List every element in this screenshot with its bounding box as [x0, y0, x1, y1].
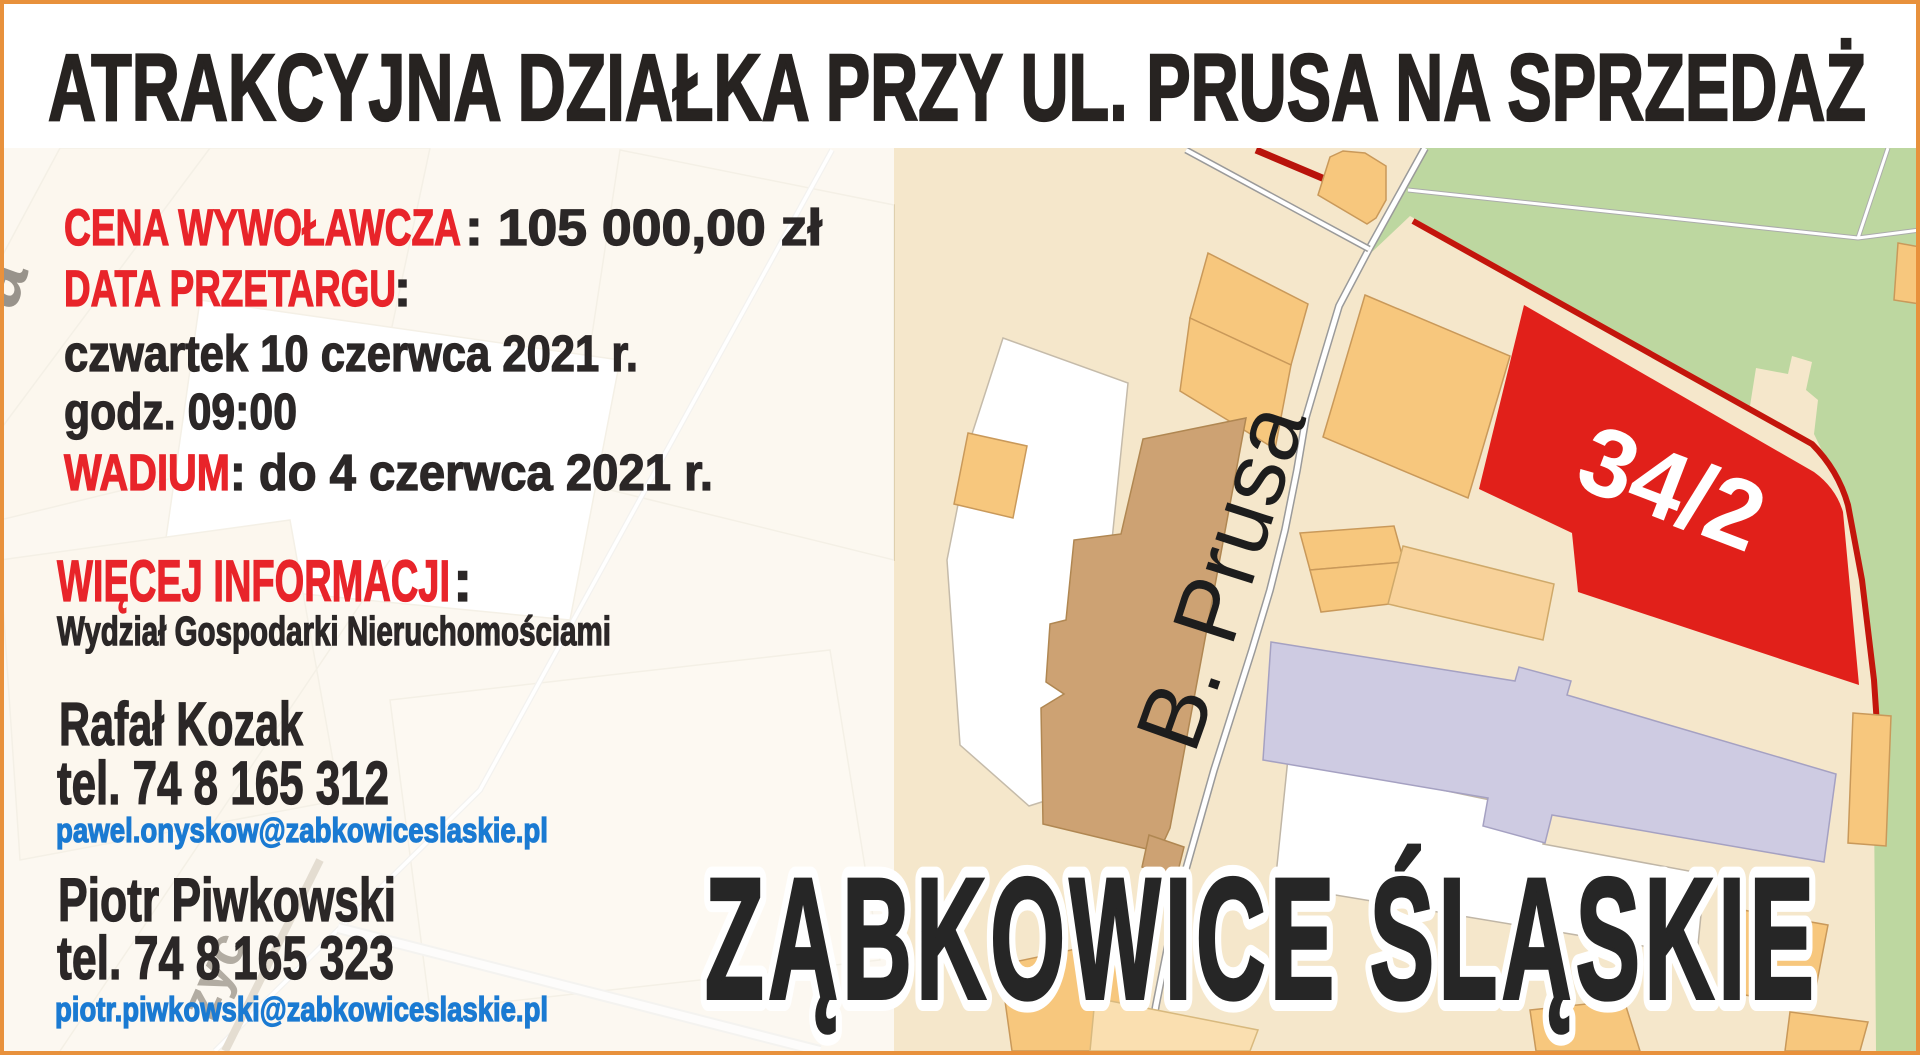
svg-text:ZĄBKOWICE ŚLĄSKIE: ZĄBKOWICE ŚLĄSKIE	[705, 842, 1818, 1035]
